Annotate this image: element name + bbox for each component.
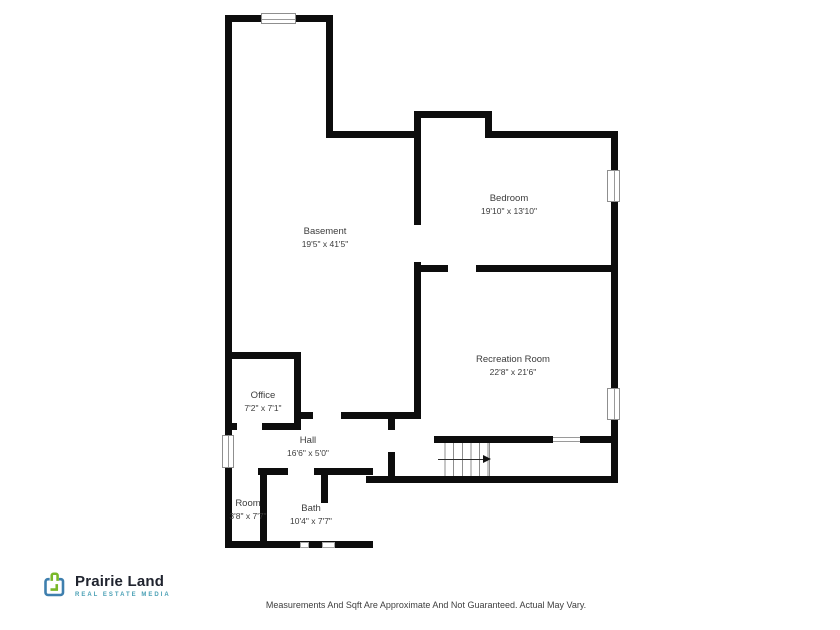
room-dimensions: 22'8" x 21'6" [476,367,550,378]
wall-segment [476,265,618,272]
wall-segment [366,476,618,483]
brand-tagline: REAL ESTATE MEDIA [75,592,171,598]
room-dimensions: 10'4" x 7'7" [290,516,332,527]
wall-notch [300,542,309,548]
stairs-direction-arrow-icon [483,455,491,463]
prairie-land-logo-icon [38,569,68,601]
window-marker [261,13,296,24]
wall-segment [321,475,328,503]
wall-segment [414,111,421,225]
wall-segment [225,15,232,548]
room-name: Basement [302,226,349,239]
wall-segment [326,15,333,138]
wall-segment [314,468,373,475]
wall-segment [485,131,618,138]
room-label-basement: Basement 19'5" x 41'5" [302,226,349,250]
room-dimensions: 19'10" x 13'10" [481,206,537,217]
wall-segment [388,452,395,477]
wall-segment [388,412,395,430]
room-label-hall: Hall 16'6" x 5'0" [287,435,329,459]
room-label-room: Room 3'8" x 7'7" [229,498,266,522]
room-name: Office [244,390,281,403]
brand-logo: Prairie Land REAL ESTATE MEDIA [38,569,171,601]
room-name: Room [229,498,266,511]
room-name: Bath [290,503,332,516]
window-marker [607,388,620,420]
wall-segment [225,352,301,359]
wall-segment [434,436,553,443]
room-name: Bedroom [481,193,537,206]
room-dimensions: 3'8" x 7'7" [229,511,266,522]
room-name: Recreation Room [476,354,550,367]
wall-segment [414,111,492,118]
measurement-disclaimer: Measurements And Sqft Are Approximate An… [266,600,586,610]
brand-name: Prairie Land [75,573,171,590]
room-label-recreation-room: Recreation Room 22'8" x 21'6" [476,354,550,378]
window-marker [607,170,620,202]
wall-segment [341,412,421,419]
room-name: Hall [287,435,329,448]
wall-segment [485,111,492,138]
cased-opening [553,437,580,442]
wall-segment [294,352,301,430]
wall-segment [414,262,421,419]
brand-text: Prairie Land REAL ESTATE MEDIA [75,573,171,598]
floor-plan-page: Basement 19'5" x 41'5" Bedroom 19'10" x … [0,0,840,630]
room-label-bedroom: Bedroom 19'10" x 13'10" [481,193,537,217]
wall-segment [225,541,373,548]
room-label-office: Office 7'2" x 7'1" [244,390,281,414]
wall-segment [326,131,421,138]
room-label-bath: Bath 10'4" x 7'7" [290,503,332,527]
room-dimensions: 19'5" x 41'5" [302,239,349,250]
wall-notch [322,542,335,548]
window-marker [222,435,234,468]
room-dimensions: 7'2" x 7'1" [244,403,281,414]
room-dimensions: 16'6" x 5'0" [287,448,329,459]
stairs-direction-line [438,459,483,460]
